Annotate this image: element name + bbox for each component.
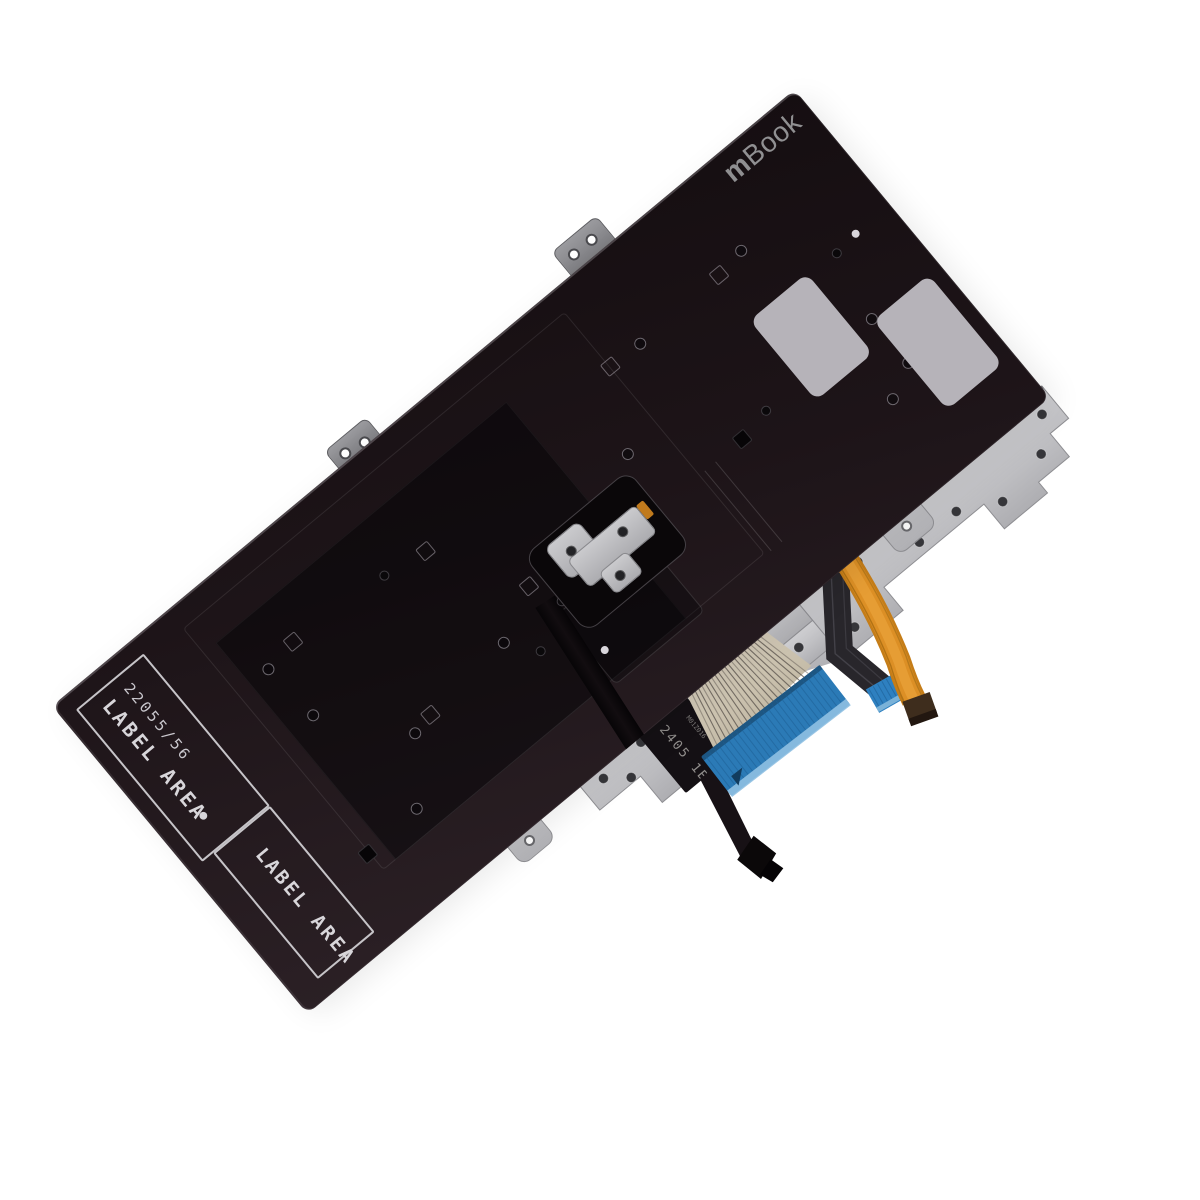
tab-hole xyxy=(565,246,582,263)
panel-hole-ring xyxy=(632,335,649,352)
panel-hole-ring xyxy=(884,391,901,408)
product-photo: 2405 1B M01Z016 xyxy=(0,0,1200,1200)
blank-sticker-2 xyxy=(873,275,1002,410)
blank-sticker-1 xyxy=(750,273,873,400)
tab-hole xyxy=(583,231,600,248)
panel-pin-hole xyxy=(850,228,861,239)
brand-logo-light: Book xyxy=(737,106,807,172)
panel-square-hole xyxy=(732,429,753,450)
panel-hole-dot xyxy=(759,404,773,418)
panel-hole-dot xyxy=(830,246,844,260)
panel-hole-ring xyxy=(733,242,750,259)
label-area-text-2: LABEL AREA xyxy=(251,844,360,969)
tab-hole xyxy=(522,833,537,848)
panel-square-cutout xyxy=(708,264,729,285)
keyboard-assembly: 2405 1B M01Z016 xyxy=(52,90,1050,1014)
brand-logo: mBook xyxy=(717,106,808,189)
